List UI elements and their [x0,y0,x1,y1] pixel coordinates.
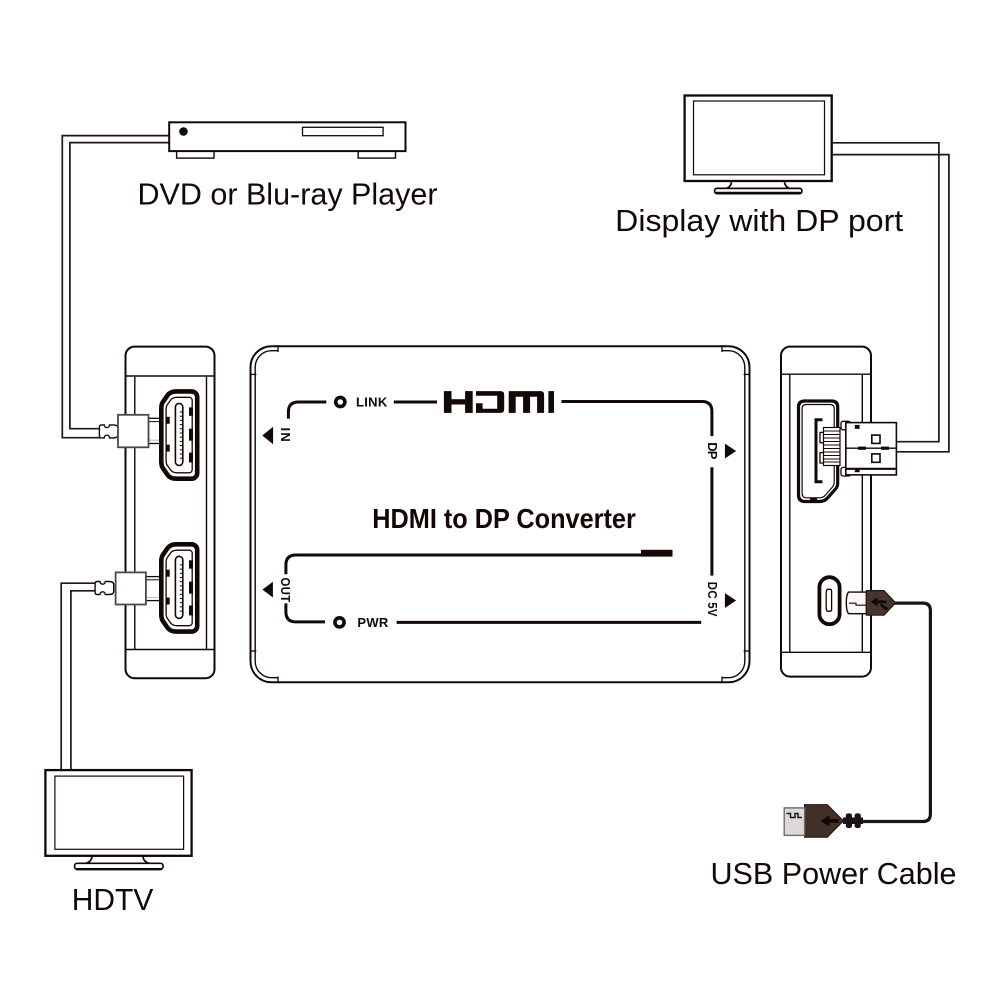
svg-text:HDTV: HDTV [72,882,154,917]
svg-text:OUT: OUT [278,578,293,603]
svg-text:PWR: PWR [357,615,389,630]
svg-text:DC 5V: DC 5V [705,582,720,617]
svg-text:Display with DP port: Display with DP port [615,203,903,238]
svg-text:DVD or Blu-ray Player: DVD or Blu-ray Player [138,177,438,212]
svg-text:HDMI to DP Converter: HDMI to DP Converter [372,503,636,534]
svg-text:IN: IN [278,428,293,443]
svg-text:DP: DP [705,442,720,459]
svg-text:USB Power Cable: USB Power Cable [711,856,957,891]
svg-text:LINK: LINK [356,395,388,410]
